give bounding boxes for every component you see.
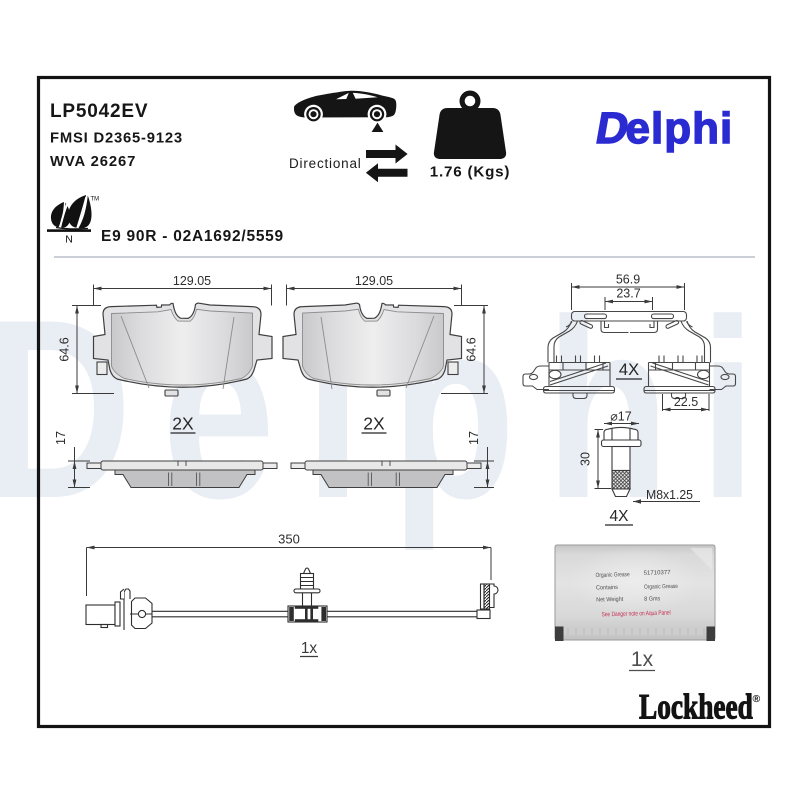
svg-text:350: 350	[278, 532, 300, 547]
svg-text:1.76 (Kgs): 1.76 (Kgs)	[430, 164, 511, 181]
svg-text:Lockheed: Lockheed	[639, 687, 753, 726]
svg-text:1x: 1x	[301, 640, 318, 657]
svg-text:129.05: 129.05	[355, 274, 393, 288]
svg-text:N: N	[65, 234, 73, 246]
svg-text:®: ®	[753, 693, 761, 705]
svg-text:2X: 2X	[363, 414, 385, 434]
svg-text:Organic Grease: Organic Grease	[596, 572, 631, 579]
svg-text:WVA 26267: WVA 26267	[50, 154, 136, 170]
svg-text:56.9: 56.9	[616, 273, 640, 287]
svg-text:LP5042EV: LP5042EV	[50, 101, 148, 122]
svg-text:M8x1.25: M8x1.25	[646, 488, 693, 502]
svg-text:Net Weight: Net Weight	[596, 597, 623, 604]
svg-text:TM: TM	[91, 197, 100, 203]
svg-text:Organic Grease: Organic Grease	[644, 584, 679, 591]
svg-text:Contains: Contains	[596, 585, 618, 592]
svg-text:2X: 2X	[172, 414, 194, 434]
svg-text:E9 90R - 02A1692/5559: E9 90R - 02A1692/5559	[101, 228, 284, 245]
svg-text:30: 30	[579, 452, 593, 466]
svg-text:64.6: 64.6	[58, 337, 72, 361]
svg-text:17: 17	[54, 431, 68, 445]
svg-text:8 Gms: 8 Gms	[644, 596, 660, 602]
svg-text:Directional: Directional	[289, 156, 362, 171]
svg-text:4X: 4X	[619, 361, 639, 379]
svg-text:22.5: 22.5	[674, 395, 698, 409]
svg-text:1x: 1x	[631, 648, 654, 671]
svg-text:⌀17: ⌀17	[610, 410, 631, 424]
svg-text:51710377: 51710377	[643, 570, 671, 577]
svg-text:elphi: elphi	[626, 104, 734, 153]
svg-text:129.05: 129.05	[173, 274, 211, 288]
svg-text:17: 17	[467, 431, 481, 445]
svg-text:23.7: 23.7	[616, 287, 640, 301]
svg-text:FMSI D2365-9123: FMSI D2365-9123	[50, 131, 183, 147]
svg-text:64.6: 64.6	[465, 337, 479, 361]
svg-text:4X: 4X	[610, 508, 630, 525]
